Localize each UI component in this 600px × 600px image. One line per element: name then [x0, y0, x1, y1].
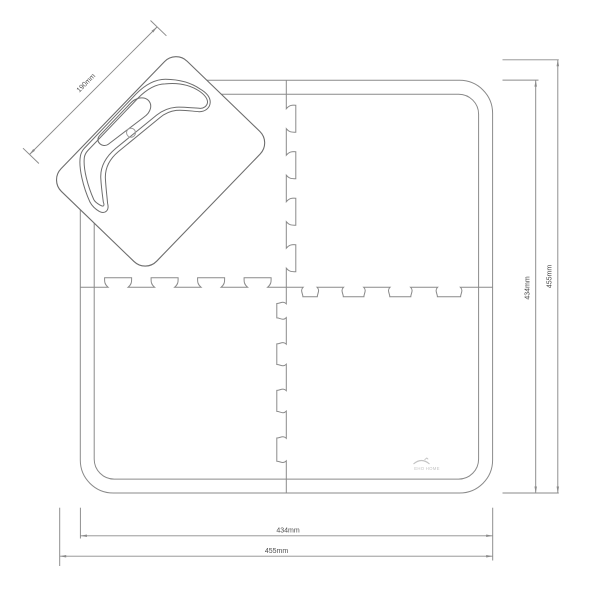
svg-text:434mm: 434mm	[525, 276, 532, 300]
svg-text:455mm: 455mm	[547, 265, 554, 289]
svg-text:434mm: 434mm	[276, 528, 300, 535]
svg-text:EHO HOME: EHO HOME	[414, 466, 439, 471]
svg-text:455mm: 455mm	[265, 548, 289, 555]
